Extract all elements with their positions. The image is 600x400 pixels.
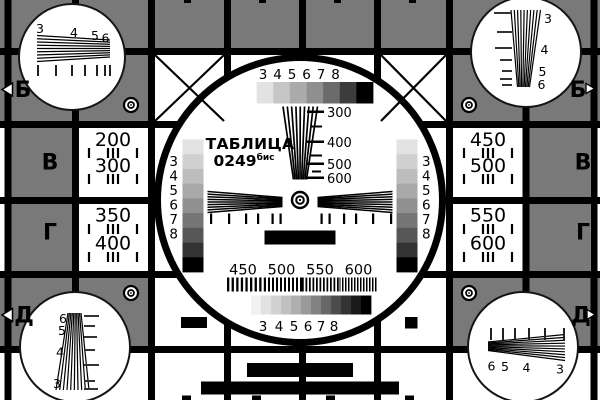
black-square-right (405, 317, 418, 329)
panel-tick (88, 148, 90, 158)
row-marker-left-b: Б (15, 78, 32, 103)
bottom-grayscale-bar (241, 296, 371, 315)
stair-step (183, 198, 204, 213)
gray-label: 7 (317, 67, 326, 83)
frequency-label: 450 (229, 263, 257, 279)
stair-step (351, 296, 361, 315)
panel-tick (136, 148, 138, 158)
stair-step (323, 82, 340, 104)
right-grayscale-stair (397, 140, 418, 273)
fan-line (521, 10, 522, 87)
stair-step (183, 140, 204, 155)
stair-step (311, 296, 321, 315)
gray-label: 3 (259, 67, 268, 83)
gray-label: 8 (330, 319, 339, 335)
panel-tick (88, 174, 90, 184)
bottom-bar-short (247, 363, 353, 377)
stair-step (397, 184, 418, 199)
stair-step (281, 296, 291, 315)
test-card-svg: 3 4 5 6 3 4 5 6 6 5 4 3 (0, 0, 600, 400)
panel-tick (463, 174, 465, 184)
panel-tick (463, 252, 465, 262)
gray-label: 4 (275, 319, 284, 335)
panel-value: 350 (95, 205, 131, 227)
panel-tick (88, 252, 90, 262)
resolution-label: 600 (327, 172, 352, 187)
row-marker-left-v: В (42, 151, 59, 176)
stair-step (251, 296, 261, 315)
panel-tick (463, 148, 465, 158)
stair-step (397, 228, 418, 243)
stair-step (331, 296, 341, 315)
stair-step (183, 257, 204, 272)
wedge-label: 4 (56, 345, 64, 360)
stair-step (291, 296, 301, 315)
wedge-label: 4 (523, 360, 531, 375)
resolution-label: 300 (327, 106, 352, 121)
gray-label: 4 (273, 67, 282, 83)
bullseye-icon (462, 98, 476, 112)
card-title: ТАБЛИЦА (206, 135, 295, 153)
panel-value: 400 (95, 233, 131, 255)
row-marker-left-d: Д (14, 304, 34, 329)
left-grayscale-stair (183, 140, 204, 273)
frequency-label: 500 (268, 263, 296, 279)
panel-tick (117, 252, 119, 262)
panel-tick (482, 174, 484, 184)
stair-step (183, 213, 204, 228)
wedge-label: 4 (541, 42, 549, 57)
gray-label: 8 (331, 67, 340, 83)
panel-tick (112, 252, 114, 262)
stair-step (397, 169, 418, 184)
panel-tick (136, 174, 138, 184)
stair-step (340, 82, 357, 104)
stair-step (290, 82, 307, 104)
row-marker-right-g: Г (576, 221, 590, 246)
frequency-label: 600 (345, 263, 373, 279)
wedge-label: 4 (70, 25, 78, 40)
wedge-label: 3 (53, 376, 61, 391)
panel-tick (107, 252, 109, 262)
bottom-bar-long (201, 382, 399, 395)
panel-tick (482, 252, 484, 262)
stair-step (397, 257, 418, 272)
stair-label: 8 (422, 227, 431, 243)
panel-value: 550 (470, 205, 506, 227)
panel-tick (136, 224, 138, 234)
top-grayscale-bar (240, 82, 373, 104)
gray-label: 5 (290, 319, 299, 335)
stair-step (271, 296, 281, 315)
panel-value: 600 (470, 233, 506, 255)
panel-tick (463, 224, 465, 234)
row-marker-right-b: Б (570, 78, 587, 103)
stair-step (183, 184, 204, 199)
panel-tick (136, 252, 138, 262)
stair-step (261, 296, 271, 315)
wedge-label: 6 (538, 77, 546, 92)
stair-step (301, 296, 311, 315)
wedge-label: 3 (556, 362, 564, 377)
bullseye-icon (124, 98, 138, 112)
stair-step (273, 82, 290, 104)
black-rect-left (181, 317, 207, 328)
panel-tick (107, 174, 109, 184)
gray-label: 6 (302, 67, 311, 83)
panel-tick (117, 174, 119, 184)
gray-label: 5 (288, 67, 297, 83)
stair-step (361, 296, 371, 315)
panel-value: 300 (95, 155, 131, 177)
stair-step (183, 169, 204, 184)
gray-label: 3 (259, 319, 268, 335)
panel-tick (511, 224, 513, 234)
stair-step (397, 213, 418, 228)
wedge-label: 5 (501, 359, 509, 374)
stair-label: 8 (169, 227, 178, 243)
stair-step (183, 243, 204, 258)
wedge-label: 3 (36, 21, 44, 36)
stair-step (183, 228, 204, 243)
black-reference-bar (265, 231, 336, 245)
panel-tick (492, 174, 494, 184)
panel-tick (487, 252, 489, 262)
bullseye-icon (462, 286, 476, 300)
stair-step (397, 198, 418, 213)
panel-tick (88, 224, 90, 234)
wedge-label: 6 (488, 359, 496, 374)
wedge-label: 6 (102, 31, 110, 46)
stair-step (356, 82, 373, 104)
gray-label: 7 (317, 319, 326, 335)
gray-label: 6 (304, 319, 313, 335)
panel-tick (511, 174, 513, 184)
wedge-label: 5 (91, 28, 99, 43)
panel-tick (487, 174, 489, 184)
stair-step (397, 243, 418, 258)
row-marker-right-v: В (575, 151, 592, 176)
wedge-label: 5 (58, 323, 66, 338)
stair-step (241, 296, 251, 315)
panel-value: 500 (470, 155, 506, 177)
panel-tick (112, 174, 114, 184)
bullseye-icon (124, 286, 138, 300)
center-bullseye-icon (292, 192, 308, 208)
panel-value: 450 (470, 129, 506, 151)
panel-value: 200 (95, 129, 131, 151)
stair-step (397, 154, 418, 169)
resolution-label: 500 (327, 158, 352, 173)
test-card: 3 4 5 6 3 4 5 6 6 5 4 3 (0, 0, 600, 400)
panel-tick (511, 252, 513, 262)
stair-step (240, 82, 257, 104)
frequency-burst-bar (227, 278, 377, 292)
stair-step (307, 82, 324, 104)
stair-step (321, 296, 331, 315)
wedge-label: 3 (544, 11, 552, 26)
stair-step (183, 154, 204, 169)
resolution-label: 400 (327, 136, 352, 151)
stair-step (257, 82, 274, 104)
panel-tick (492, 252, 494, 262)
panel-tick (511, 148, 513, 158)
frequency-label: 550 (306, 263, 334, 279)
row-marker-left-g: Г (43, 221, 57, 246)
stair-step (341, 296, 351, 315)
stair-step (397, 140, 418, 155)
